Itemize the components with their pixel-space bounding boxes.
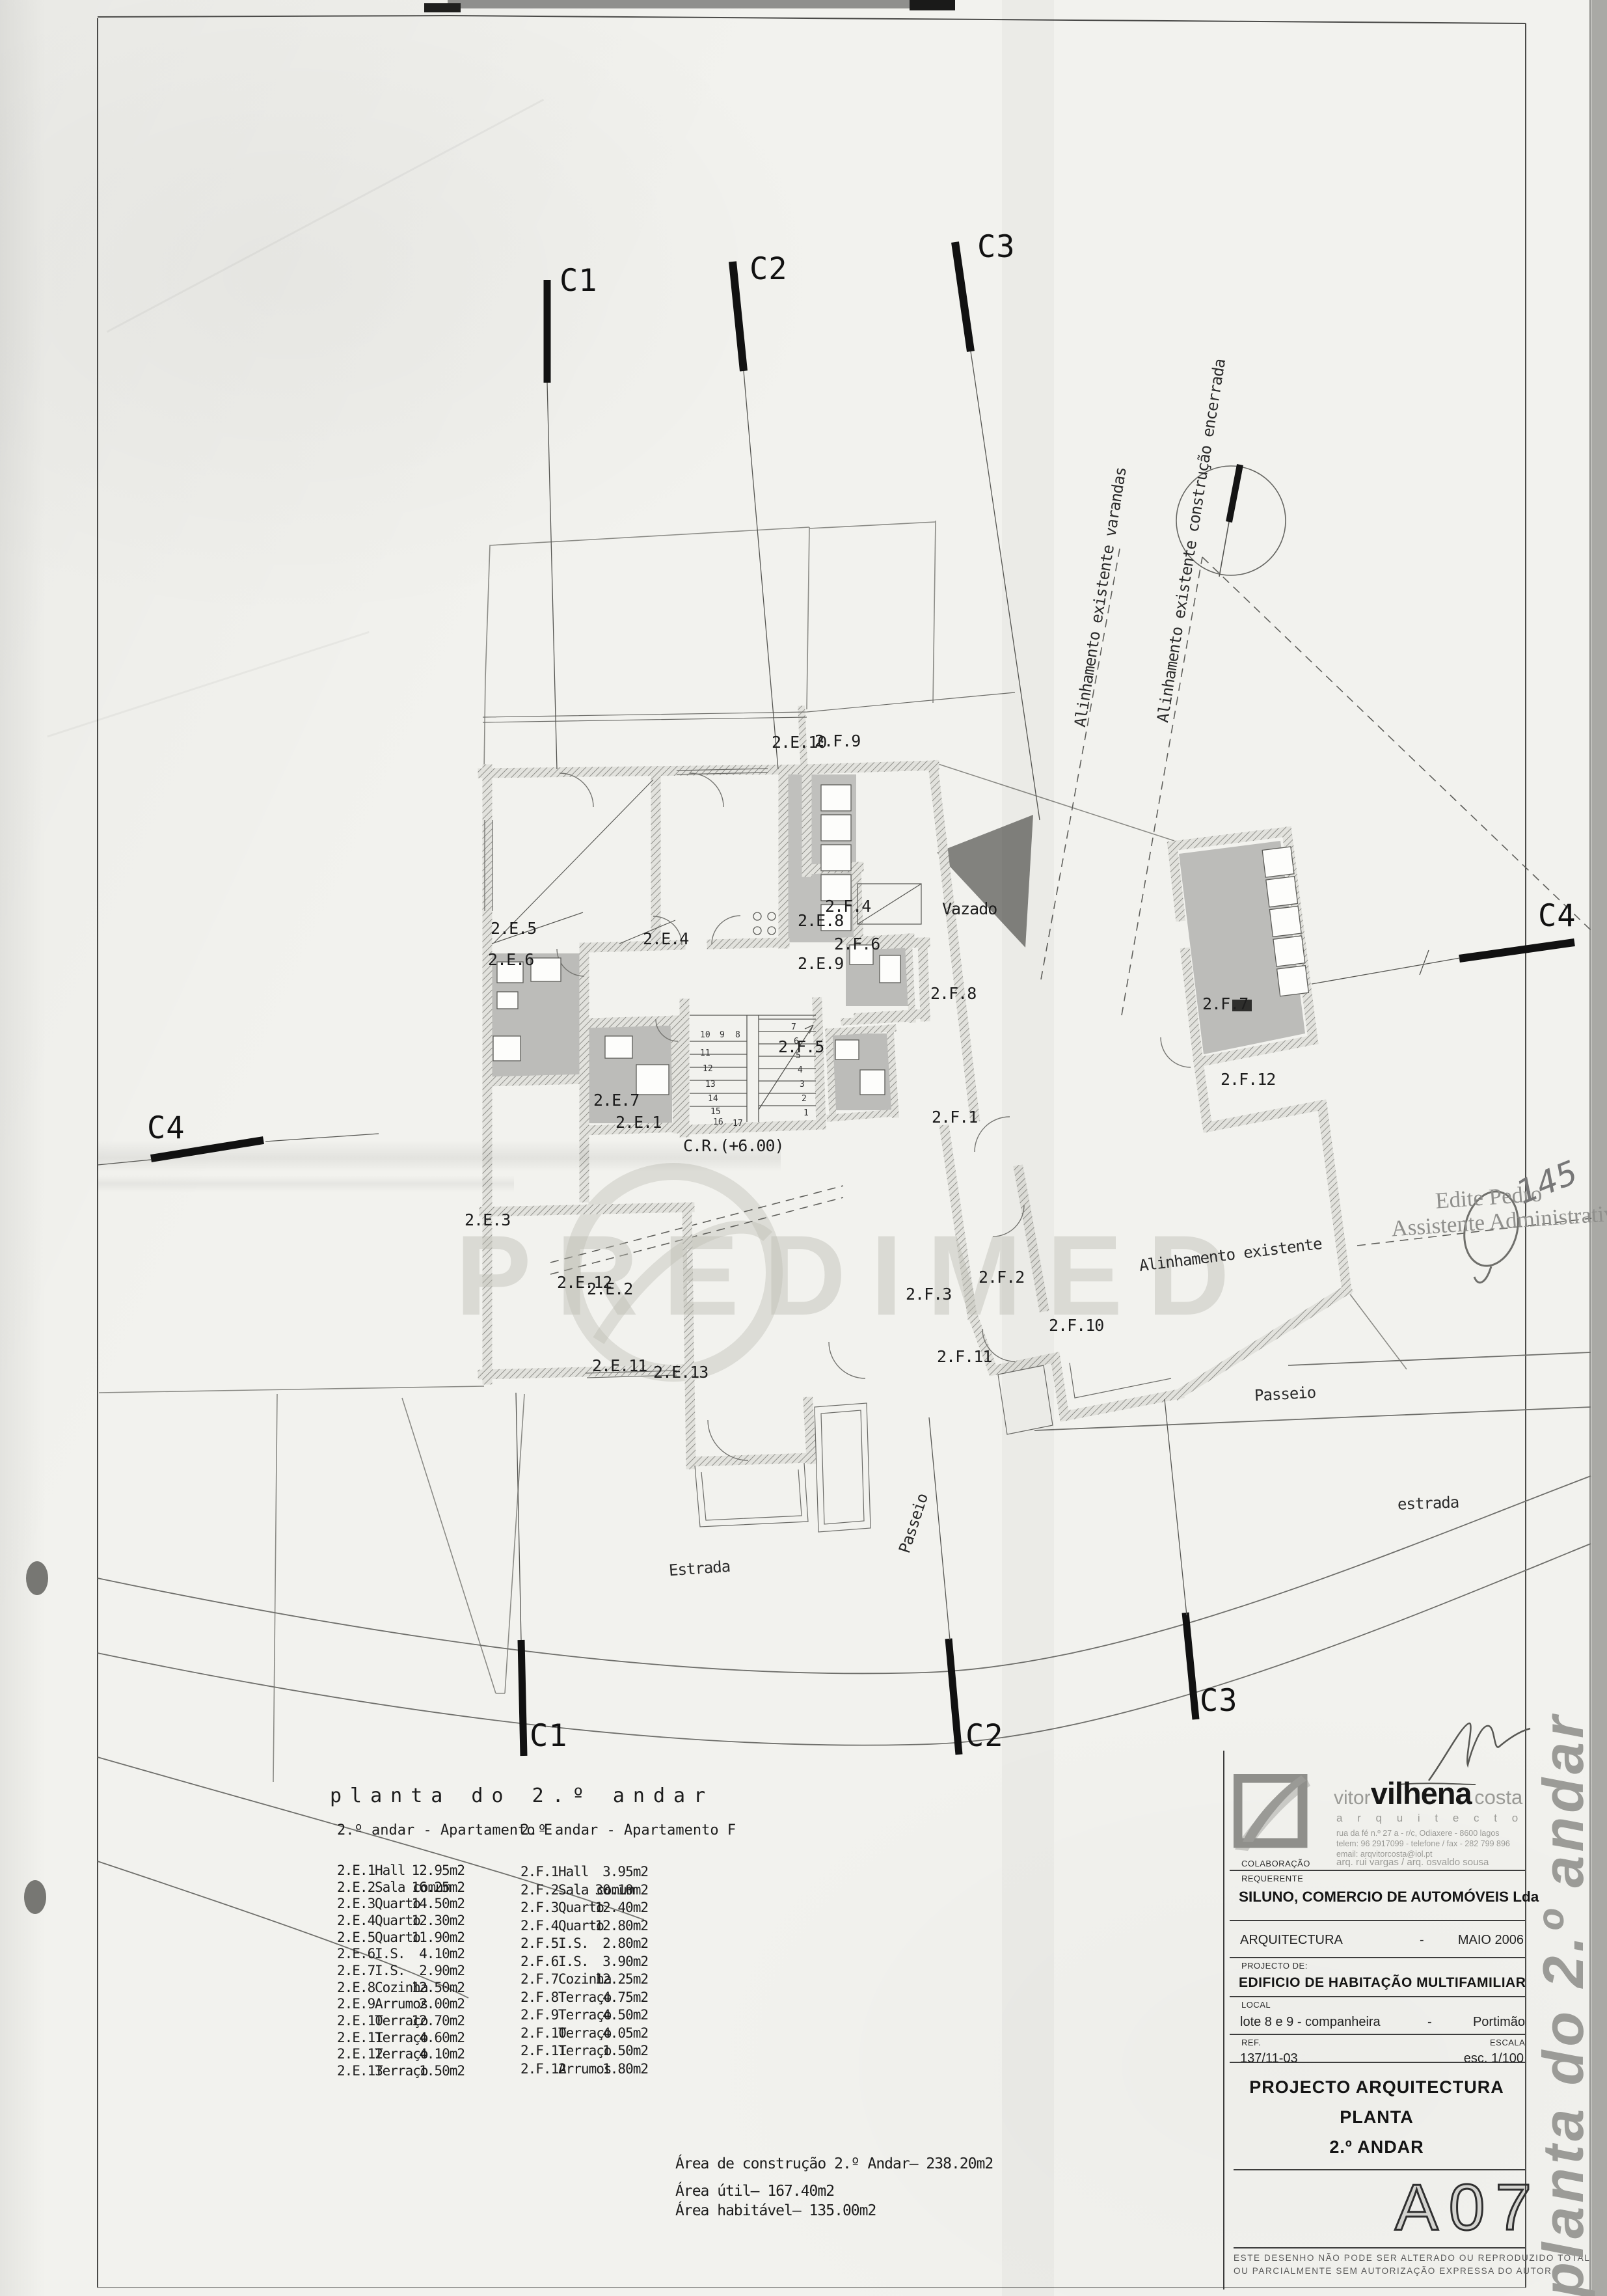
divider	[1234, 2247, 1525, 2248]
stair-step: 3	[800, 1080, 805, 1089]
section-marker-lines	[98, 242, 1574, 1756]
drawing-number-letter: A	[1395, 2183, 1438, 2232]
legend-row: 2.F.11Terraço1.50m2	[520, 2043, 648, 2058]
doc-title-line3: 2.º ANDAR	[1224, 2137, 1529, 2157]
section-label-c3-top: C3	[977, 232, 1016, 262]
legend-row: 2.E.2Sala comum16.25m2	[337, 1879, 465, 1895]
room-label-2e3: 2.E.3	[465, 1212, 510, 1228]
city: Portimão	[1473, 2015, 1525, 2030]
room-label-2f6: 2.F.6	[834, 936, 880, 952]
room-label-2e1: 2.E.1	[615, 1114, 661, 1130]
room-label-2f5: 2.F.5	[778, 1039, 824, 1055]
legend-row: 2.F.7Cozinha12.25m2	[520, 1971, 648, 1987]
scale-label: ESCALA	[1490, 2038, 1525, 2047]
stair-step: 17	[733, 1119, 743, 1128]
discipline-dash: -	[1420, 1933, 1424, 1948]
street-label-passeio-right: Passeio	[1254, 1385, 1316, 1404]
brand-phone: telem: 96 2917099 - telefone / fax - 282…	[1336, 1839, 1510, 1848]
section-label-c2-top: C2	[749, 254, 788, 284]
room-label-2f10: 2.F.10	[1049, 1317, 1103, 1333]
legend-row: 2.F.6I.S.3.90m2	[520, 1954, 648, 1969]
room-label-2f11: 2.F.11	[937, 1348, 992, 1365]
side-sheet-title: planta do 2.º andar	[1530, 1607, 1597, 2296]
legend-row: 2.E.12Terraço4.10m2	[337, 2046, 465, 2062]
stair-step: 14	[708, 1095, 718, 1103]
title-block: vitorvilhena costa a r q u i t e c t o r…	[1223, 1751, 1529, 2289]
local-label: LOCAL	[1241, 2000, 1271, 2010]
legend-row: 2.E.1Hall12.95m2	[337, 1863, 465, 1878]
drawing-number-digit: 7	[1495, 2183, 1532, 2232]
area-useful: Área útil– 167.40m2	[675, 2183, 834, 2200]
stair-step: 1	[803, 1109, 809, 1117]
section-label-c4-left: C4	[147, 1113, 185, 1143]
legend-row: 2.E.10Terraço12.70m2	[337, 2013, 465, 2029]
ref-value: 137/11-03	[1240, 2051, 1298, 2066]
brand-address: rua da fé n.º 27 a - r/c, Odiaxere - 860…	[1336, 1829, 1500, 1838]
drawing-number: A 0 7	[1250, 2175, 1511, 2240]
legend-row: 2.F.2Sala comum30.10m2	[520, 1882, 648, 1898]
room-label-2f9: 2.F.9	[815, 733, 860, 749]
room-label-2e13: 2.E.13	[653, 1364, 708, 1380]
room-label-2f1: 2.F.1	[932, 1109, 977, 1125]
legend-row: 2.E.9Arrumos2.00m2	[337, 1996, 465, 2012]
void-label-vazado: Vazado	[942, 901, 997, 917]
divider	[1234, 2169, 1525, 2170]
divider	[1230, 2062, 1525, 2063]
local-value: lote 8 e 9 - companheira	[1240, 2015, 1381, 2030]
client-label: REQUERENTE	[1241, 1874, 1303, 1883]
legend-row: 2.E.11Terraço4.60m2	[337, 2030, 465, 2045]
divider	[1230, 1870, 1525, 1871]
legend-row: 2.F.10Terraço4.05m2	[520, 2025, 648, 2041]
room-label-2e9: 2.E.9	[798, 955, 843, 972]
legend-row: 2.F.8Terraço4.75m2	[520, 1989, 648, 2005]
legend-title: planta do 2.º andar	[330, 1784, 714, 1807]
level-label-cr: C.R.(+6.00)	[683, 1138, 784, 1154]
area-habitable: Área habitável– 135.00m2	[675, 2202, 876, 2219]
drawing-number-digit: 0	[1449, 2183, 1485, 2232]
divider	[1230, 1957, 1525, 1958]
section-label-c4-right: C4	[1538, 901, 1576, 931]
legend-row: 2.F.5I.S.2.80m2	[520, 1935, 648, 1951]
street-label-estrada-bottom: Estrada	[668, 1559, 731, 1579]
legend-row: 2.E.13Terraço1.50m2	[337, 2063, 465, 2079]
stair-step: 13	[705, 1080, 716, 1089]
legend-row: 2.F.3Quarto12.40m2	[520, 1900, 648, 1915]
stair-step: 5	[796, 1052, 801, 1060]
room-label-2e2: 2.E.2	[587, 1281, 632, 1297]
street-label-estrada-right: estrada	[1398, 1494, 1459, 1512]
legend-row: 2.F.12Arrumos1.80m2	[520, 2061, 648, 2077]
stair-step: 16	[713, 1118, 723, 1127]
drawing-sheet: PREDIMED C1 C2 C3 C4 C4 C1 C2 C3 2.E.10 …	[0, 0, 1607, 2296]
section-label-c3-bottom: C3	[1200, 1686, 1238, 1716]
brand-last: vilhena	[1371, 1776, 1472, 1811]
project-name: EDIFICIO DE HABITAÇÃO MULTIFAMILIAR	[1239, 1975, 1526, 1991]
stair-step: 15	[710, 1108, 721, 1116]
stair-step: 11	[700, 1049, 710, 1058]
legend-row: 2.F.1Hall3.95m2	[520, 1864, 648, 1879]
divider	[1230, 1920, 1525, 1921]
legend-row: 2.E.8Cozinha12.50m2	[337, 1980, 465, 1995]
scale-value: esc. 1/100	[1464, 2051, 1524, 2066]
divider	[1230, 2034, 1525, 2035]
alignment-dashed-lines	[550, 545, 1591, 1274]
collaborators: arq. rui vargas / arq. osvaldo sousa	[1336, 1857, 1489, 1868]
brand-profession: a r q u i t e c t o	[1336, 1812, 1524, 1825]
area-construction: Área de construção 2.º Andar– 238.20m2	[675, 2155, 993, 2172]
room-label-2f2: 2.F.2	[979, 1269, 1024, 1285]
room-label-2e4: 2.E.4	[643, 931, 688, 947]
room-label-2e11: 2.E.11	[592, 1358, 647, 1374]
architect-logo	[1234, 1774, 1310, 1851]
section-label-c2-bottom: C2	[966, 1721, 1004, 1751]
stair-step: 12	[703, 1065, 713, 1073]
stair-step: 8	[735, 1031, 740, 1039]
stair-step: 10	[700, 1031, 710, 1039]
divider	[1230, 1996, 1525, 1997]
brand-name: vitorvilhena costa	[1334, 1775, 1522, 1811]
brand-surname: costa	[1474, 1786, 1522, 1809]
logo-swoosh	[1243, 1775, 1306, 1842]
legend-row: 2.F.9Terraço4.50m2	[520, 2007, 648, 2023]
room-label-2f7: 2.F.7	[1202, 996, 1248, 1012]
room-label-2f4: 2.F.4	[825, 898, 871, 914]
ref-label: REF.	[1241, 2038, 1261, 2047]
stair-step: 7	[791, 1023, 796, 1032]
legend-row: 2.E.3Quarto14.50m2	[337, 1896, 465, 1911]
brand-first: vitor	[1334, 1787, 1371, 1809]
legend-row: 2.E.7I.S.2.90m2	[337, 1963, 465, 1978]
collaboration-label: COLABORAÇÃO	[1241, 1859, 1310, 1868]
room-label-2e6: 2.E.6	[488, 951, 533, 968]
room-label-2e7: 2.E.7	[593, 1092, 639, 1108]
scan-artifacts	[424, 0, 955, 12]
stair-step: 9	[720, 1031, 725, 1039]
room-label-2f12: 2.F.12	[1221, 1071, 1275, 1087]
project-label: PROJECTO DE:	[1241, 1961, 1308, 1971]
doc-title-line2: PLANTA	[1224, 2107, 1529, 2127]
legend-row: 2.E.5Quarto11.90m2	[337, 1930, 465, 1945]
legend-row: 2.E.6I.S.4.10m2	[337, 1946, 465, 1961]
room-label-2f3: 2.F.3	[906, 1286, 951, 1302]
room-label-2f8: 2.F.8	[930, 985, 976, 1002]
date: MAIO 2006	[1458, 1933, 1524, 1948]
client-name: SILUNO, COMERCIO DE AUTOMÓVEIS Lda	[1239, 1889, 1539, 1906]
legend-heading-apartment-f: 2.º andar - Apartamento F	[520, 1822, 736, 1838]
local-dash: -	[1427, 2015, 1432, 2030]
disclaimer-line2: OU PARCIALMENTE SEM AUTORIZAÇÃO EXPRESSA…	[1234, 2266, 1552, 2276]
stair-step: 4	[798, 1066, 803, 1074]
legend-row: 2.E.4Quarto12.30m2	[337, 1913, 465, 1928]
room-label-2e5: 2.E.5	[491, 920, 536, 936]
punch-hole	[24, 1561, 48, 1914]
stair-step: 6	[794, 1037, 799, 1046]
section-label-c1-bottom: C1	[530, 1721, 568, 1751]
discipline: ARQUITECTURA	[1240, 1933, 1343, 1948]
section-label-c1-top: C1	[560, 266, 598, 296]
stair-step: 2	[802, 1095, 807, 1103]
legend-row: 2.F.4Quarto12.80m2	[520, 1918, 648, 1934]
doc-title-line1: PROJECTO ARQUITECTURA	[1224, 2077, 1529, 2098]
